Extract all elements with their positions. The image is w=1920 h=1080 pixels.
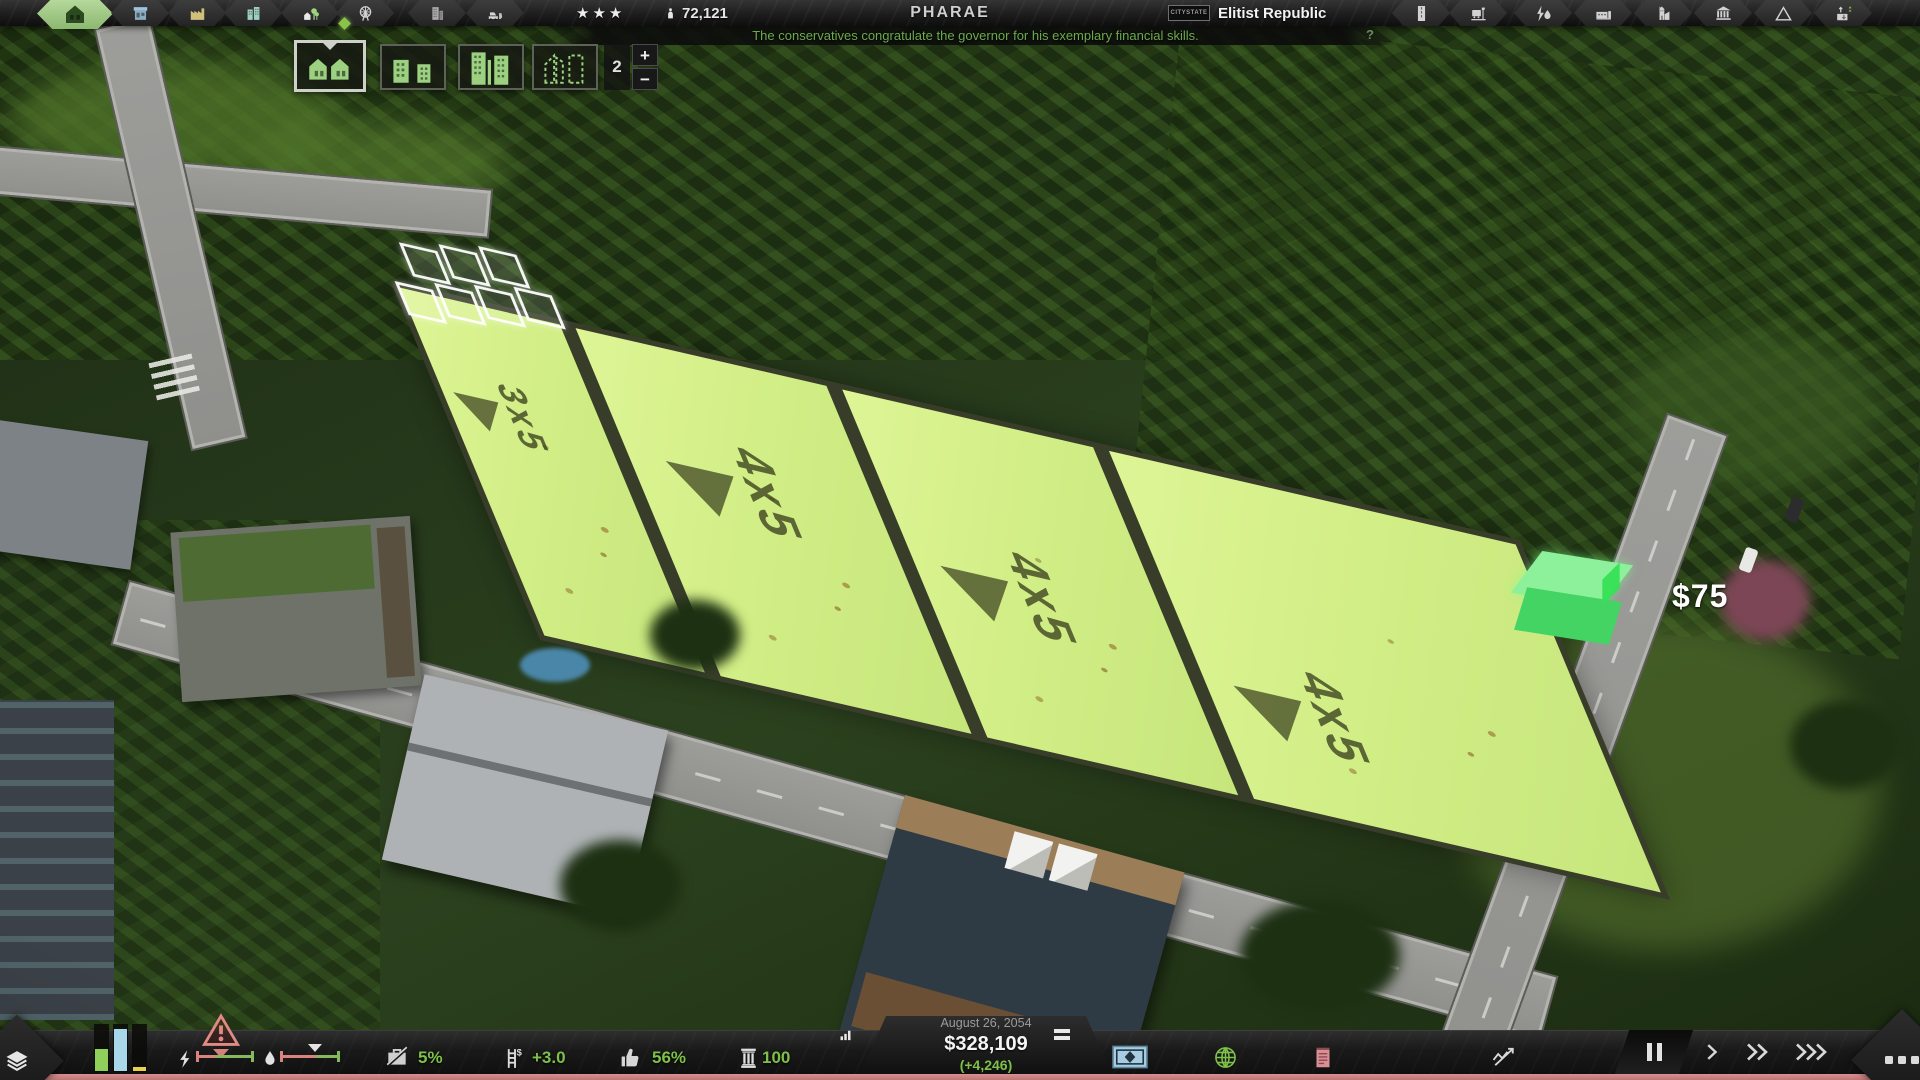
- speed-play-button[interactable]: [1696, 1030, 1726, 1074]
- government-type: Elitist Republic: [1218, 0, 1326, 26]
- tree: [650, 600, 740, 670]
- price-label: $75: [1672, 578, 1728, 615]
- industrial-zone-button[interactable]: [168, 0, 226, 26]
- landscaping-button[interactable]: [1754, 0, 1812, 26]
- residential-demand-bar: [94, 1024, 109, 1072]
- treasury-value: $328,109: [944, 1032, 1027, 1057]
- apartment-tower: [0, 700, 114, 1020]
- terrain-icon: [1834, 4, 1853, 23]
- utilities-button[interactable]: [1514, 0, 1572, 26]
- water-slider-marker: [308, 1044, 322, 1052]
- density-medium-button[interactable]: [380, 44, 446, 90]
- pool: [520, 648, 590, 682]
- religion-icon: [1654, 4, 1673, 23]
- residential-zone-button[interactable]: [37, 0, 113, 29]
- tree: [1240, 900, 1400, 1010]
- treasury-delta: (+4,246): [960, 1057, 1013, 1075]
- population-readout: 72,121: [664, 0, 728, 26]
- demolish-icon: [486, 4, 505, 23]
- game-date: August 26, 2054: [940, 1016, 1031, 1032]
- income-icon: $: [502, 1046, 527, 1071]
- density-high-button[interactable]: [458, 44, 524, 90]
- commercial-zone-button[interactable]: [111, 0, 169, 26]
- selection-arrow-icon: [1598, 562, 1624, 606]
- blossom-tree: [1720, 560, 1810, 640]
- roads-icon: [1412, 4, 1431, 23]
- top-bar: ★★★ 72,121 PHARAE CITYSTATE Elitist Repu…: [0, 0, 1920, 26]
- high-density-icon: [467, 47, 515, 88]
- demand-bars: [94, 1024, 147, 1072]
- religion-button[interactable]: [1634, 0, 1692, 26]
- budget-icon[interactable]: [1112, 1045, 1148, 1069]
- floors-count: 2: [604, 44, 630, 90]
- help-icon[interactable]: ?: [1366, 27, 1374, 42]
- city-rating-stars: ★★★: [576, 0, 625, 26]
- density-low-button[interactable]: [294, 40, 366, 92]
- pause-icon: [1647, 1043, 1662, 1061]
- screen-edge-strip: [0, 1074, 1920, 1080]
- leisure-icon: [356, 4, 375, 23]
- income-change-value: +3.0: [532, 1048, 566, 1068]
- industrial-demand-bar: [132, 1024, 147, 1072]
- education-button[interactable]: [1574, 0, 1632, 26]
- low-density-icon: [306, 50, 354, 83]
- speed-fast-button[interactable]: [1738, 1030, 1776, 1074]
- mixed-zone-button[interactable]: [224, 0, 282, 26]
- government-icon: [1714, 4, 1733, 23]
- unemployment-icon: [384, 1044, 410, 1070]
- eco-roof-building: [170, 516, 421, 702]
- news-ticker[interactable]: The conservatives congratulate the gover…: [553, 26, 1398, 45]
- water-icon: [260, 1049, 280, 1069]
- demolish-button[interactable]: [466, 0, 524, 26]
- palm-tree: [1790, 700, 1900, 790]
- industrial-zone-icon: [188, 4, 207, 23]
- parks-button[interactable]: [281, 0, 339, 26]
- tree: [560, 840, 680, 930]
- custom-density-icon: [541, 49, 589, 86]
- signal-bars-icon: [838, 1027, 853, 1042]
- landscaping-icon: [1774, 4, 1793, 23]
- speed-fastest-button[interactable]: [1788, 1030, 1834, 1074]
- trade-icon[interactable]: [1212, 1044, 1239, 1071]
- offices-button[interactable]: [408, 0, 466, 26]
- population-icon: [664, 7, 677, 20]
- transit-icon: [1469, 4, 1488, 23]
- floors-increase-button[interactable]: +: [632, 44, 658, 66]
- paused-indicator-icon: [1054, 1029, 1070, 1040]
- treasury-panel[interactable]: August 26, 2054 $328,109 (+4,246): [860, 1016, 1112, 1074]
- electricity-slider[interactable]: [198, 1055, 252, 1058]
- mixed-zone-icon: [244, 4, 263, 23]
- approval-value: 56%: [652, 1048, 686, 1068]
- floors-decrease-button[interactable]: −: [632, 68, 658, 90]
- svg-text:$: $: [517, 1047, 523, 1057]
- news-ticker-text: The conservatives congratulate the gover…: [752, 28, 1199, 43]
- education-icon: [1594, 4, 1613, 23]
- commercial-zone-icon: [131, 4, 150, 23]
- utilities-icon: [1534, 4, 1553, 23]
- commercial-demand-bar: [113, 1024, 128, 1072]
- unemployment-value: 5%: [418, 1048, 443, 1068]
- house: [0, 420, 148, 570]
- density-custom-button[interactable]: [532, 44, 598, 90]
- stability-icon: [736, 1045, 761, 1070]
- game-screen: 3x5 4x5 4x5 4x5: [0, 0, 1920, 1080]
- stability-value: 100: [762, 1048, 790, 1068]
- electricity-icon: [176, 1049, 196, 1069]
- residential-zone-icon: [63, 2, 87, 26]
- parks-icon: [301, 4, 320, 23]
- offices-icon: [428, 4, 447, 23]
- policies-icon[interactable]: [1310, 1044, 1336, 1072]
- map-view[interactable]: 3x5 4x5 4x5 4x5: [0, 0, 1920, 1080]
- city-name: PHARAE: [880, 0, 1020, 26]
- government-button[interactable]: [1694, 0, 1752, 26]
- medium-density-icon: [389, 49, 437, 86]
- terrain-button[interactable]: [1814, 0, 1872, 26]
- menu-icon: [1885, 1056, 1919, 1064]
- map-layers-icon: [3, 1047, 31, 1075]
- roads-button[interactable]: [1392, 0, 1450, 26]
- milestone-icon: CITYSTATE: [1168, 5, 1210, 21]
- approval-icon: [618, 1045, 643, 1070]
- water-slider[interactable]: [282, 1055, 338, 1058]
- alert-icon[interactable]: [200, 1012, 242, 1050]
- population-value: 72,121: [682, 5, 728, 22]
- statistics-icon[interactable]: [1490, 1043, 1518, 1071]
- transit-button[interactable]: [1449, 0, 1507, 26]
